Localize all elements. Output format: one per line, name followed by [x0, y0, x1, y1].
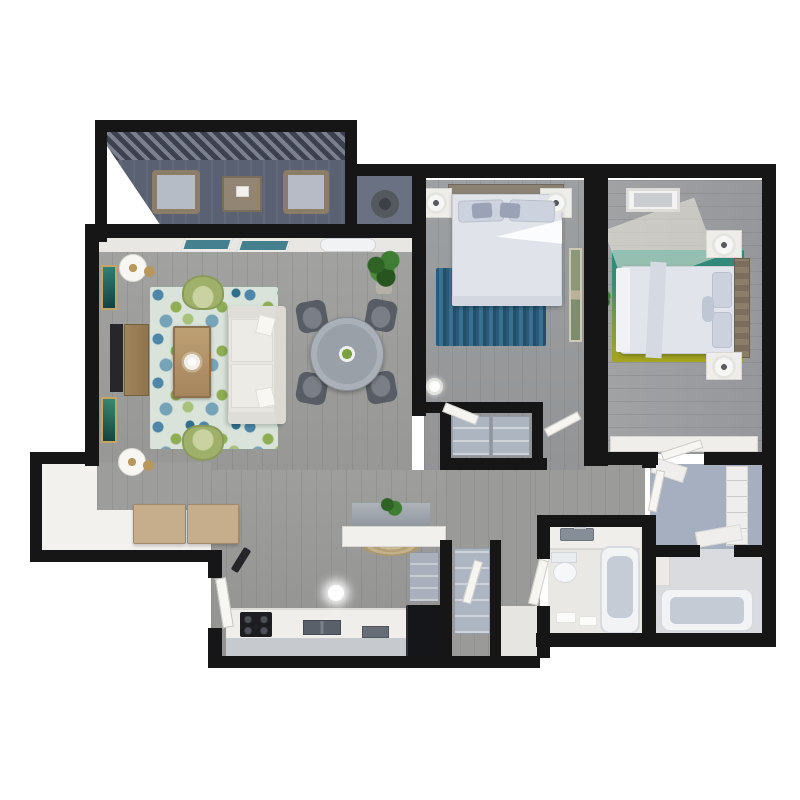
wall-hall-bottom: [440, 656, 540, 668]
accent-chair-bottom: [182, 425, 224, 461]
kitchen-ceiling-light: [328, 585, 344, 601]
dining-table: [310, 317, 384, 391]
wall-bath1-top: [537, 515, 654, 527]
tv-screen: [110, 324, 123, 392]
stove-cooktop: [240, 612, 272, 637]
bed2-foot-sheet: [616, 268, 630, 352]
window-pane-right: [237, 239, 291, 252]
hallway-floor-white-patch: [501, 606, 537, 656]
wall-art-left-top: [101, 265, 117, 310]
kitchen-dish-tray: [362, 626, 389, 638]
mbath-bathtub-basin: [670, 597, 744, 624]
bath1-sink: [560, 528, 594, 541]
sofa-throw-pillow-bottom: [255, 386, 276, 408]
bath1-mat-left: [556, 612, 576, 623]
bed2-skylight-glass: [634, 193, 672, 207]
bath1-mat-right: [579, 616, 597, 626]
sputnik-lamp-bottom: [118, 448, 146, 476]
bed1-ceiling-light: [426, 378, 443, 395]
wall-balcony-top: [95, 120, 357, 132]
bed1-wall-art: [569, 248, 582, 342]
ceiling-vent: [320, 238, 376, 252]
entry-ottoman-right: [187, 504, 239, 544]
coffee-table-medallion: [181, 351, 203, 373]
bed2-headboard: [734, 258, 750, 358]
wall-living-left: [85, 224, 99, 466]
wall-bed2-bottom-left: [596, 452, 658, 465]
balcony-awning: [107, 132, 345, 160]
tv-console: [124, 324, 149, 396]
sofa-back: [274, 306, 286, 424]
alcove-pouf: [371, 190, 399, 218]
wall-bed2-bottom-right: [704, 452, 776, 465]
wall-bath1-right: [642, 515, 656, 645]
wall-wic-mbath-left: [642, 545, 700, 557]
wall-art-left-bottom: [101, 397, 117, 443]
accent-chair-top: [182, 275, 224, 310]
bed1-lamp-left: [425, 192, 447, 214]
pantry-cabinet: [409, 552, 439, 602]
wall-kitchen-left-upper: [208, 550, 222, 578]
bed1-lumbar-pillow-left: [472, 202, 493, 218]
bath1-toilet-bowl: [553, 562, 577, 583]
wall-bath1-left-lower: [537, 606, 550, 658]
wall-bed1-closet-bottom: [440, 458, 547, 470]
island-counter: [342, 526, 446, 547]
bed2-pillow-top: [712, 272, 732, 308]
balcony-chair-right: [283, 170, 329, 214]
sofa-arm-bottom: [228, 412, 276, 424]
sputnik-lamp-top: [119, 254, 147, 282]
bed2-bolster-pillow: [702, 296, 714, 322]
wall-bed1-bed2-divider: [584, 164, 608, 466]
bed1-foot-fold: [452, 296, 562, 306]
nook-floor-wood: [97, 462, 211, 510]
wall-pantry-right: [490, 540, 501, 668]
wall-bed1-closet-right: [532, 402, 543, 470]
refrigerator: [406, 605, 443, 660]
window-pane-left: [181, 238, 233, 251]
bath1-bathtub-basin: [607, 556, 633, 618]
sputnik-lamp-top-ball: [144, 266, 155, 277]
wall-entry-bottom: [30, 550, 222, 562]
kitchen-sink: [303, 620, 341, 635]
floorplan: [0, 0, 800, 800]
wall-alcove-top: [345, 164, 419, 176]
wall-pantry-left: [440, 540, 452, 668]
wall-bed1-left: [412, 164, 426, 416]
wall-kitchen-bottom: [208, 656, 458, 668]
wall-bed1-closet-top: [412, 402, 543, 413]
bed2-lamp-top: [712, 233, 736, 257]
bed1-closet-bin-right: [492, 416, 530, 456]
bed2-pillow-bottom: [712, 312, 732, 348]
sputnik-lamp-bottom-ball: [143, 460, 154, 471]
entry-ottoman-left: [133, 504, 186, 544]
balcony-chair-left: [152, 170, 200, 214]
balcony-table-cup: [236, 186, 249, 197]
wall-bottom-right: [536, 633, 776, 647]
wall-right-outer: [762, 164, 776, 647]
dining-plant: [364, 246, 404, 294]
wall-wic-mbath-right: [734, 545, 776, 557]
wall-entry-left: [30, 452, 42, 562]
wall-living-top: [85, 224, 424, 238]
island-plant: [379, 495, 403, 519]
bed1-lumbar-pillow-right: [500, 202, 521, 218]
bed2-lamp-bottom: [712, 355, 736, 379]
